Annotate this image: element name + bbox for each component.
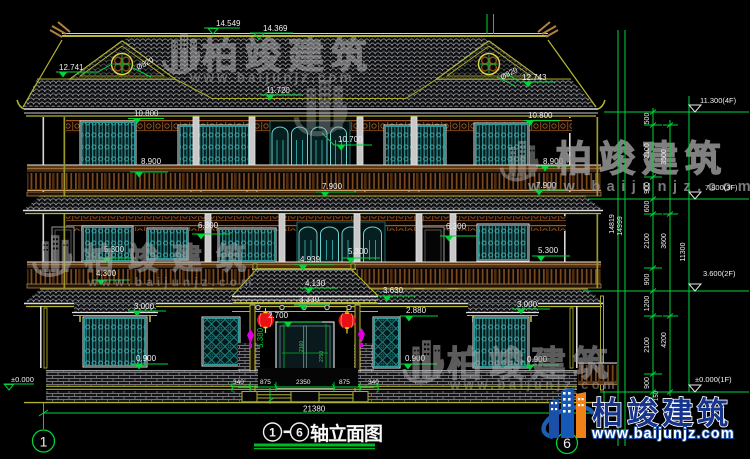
svg-text:14.549: 14.549 (216, 19, 241, 28)
svg-text:5.380: 5.380 (256, 327, 265, 348)
svg-text:1200: 1200 (644, 296, 651, 312)
svg-text:8.900: 8.900 (141, 157, 162, 166)
svg-text:5.300: 5.300 (348, 247, 369, 256)
svg-text:10.700: 10.700 (338, 135, 363, 144)
svg-text:7.800(3F): 7.800(3F) (705, 183, 738, 192)
svg-text:14819: 14819 (609, 214, 616, 234)
svg-text:2100: 2100 (644, 143, 651, 159)
svg-text:340: 340 (368, 379, 379, 386)
svg-text:1: 1 (269, 426, 276, 440)
svg-text:3.630: 3.630 (383, 286, 404, 295)
svg-text:14999: 14999 (617, 216, 624, 236)
svg-text:1: 1 (40, 434, 48, 450)
svg-text:900: 900 (644, 274, 651, 286)
svg-text:6.300: 6.300 (446, 222, 467, 231)
svg-text:875: 875 (260, 379, 271, 386)
svg-text:6.300: 6.300 (198, 221, 219, 230)
svg-text:4.130: 4.130 (305, 279, 326, 288)
svg-text:2.880: 2.880 (406, 306, 427, 315)
svg-text:3.000: 3.000 (134, 302, 155, 311)
svg-text:±0.000: ±0.000 (11, 375, 34, 384)
svg-text:500: 500 (644, 113, 651, 125)
svg-text:3600: 3600 (661, 233, 668, 249)
svg-text:柏竣建筑: 柏竣建筑 (84, 242, 260, 276)
svg-text:4200: 4200 (661, 332, 668, 348)
svg-text:11.720: 11.720 (266, 86, 290, 95)
svg-text:12.743: 12.743 (522, 73, 547, 82)
svg-text:2100: 2100 (644, 337, 651, 353)
svg-text:900: 900 (644, 377, 651, 389)
svg-text:11300: 11300 (680, 242, 687, 261)
svg-text:10.800: 10.800 (134, 109, 159, 118)
svg-text:11.300(4F): 11.300(4F) (700, 96, 737, 105)
svg-text:12.741: 12.741 (59, 63, 84, 72)
svg-text:5.300: 5.300 (538, 246, 559, 255)
svg-text:www.baijunjz.com: www.baijunjz.com (449, 377, 618, 392)
svg-text:www.baijunjz.com: www.baijunjz.com (87, 275, 256, 289)
svg-text:7.900: 7.900 (322, 182, 343, 191)
svg-text:4.939: 4.939 (300, 255, 321, 264)
svg-text:2.700: 2.700 (268, 311, 289, 320)
svg-text:柏竣建筑: 柏竣建筑 (556, 138, 728, 179)
svg-text:3.000: 3.000 (517, 300, 538, 309)
svg-text:10.800: 10.800 (528, 111, 553, 120)
svg-text:21380: 21380 (303, 405, 326, 414)
svg-text:2160: 2160 (299, 341, 305, 352)
svg-text:340: 340 (233, 379, 244, 386)
svg-text:3500: 3500 (661, 149, 668, 165)
svg-text:www.baijunjz.com: www.baijunjz.com (591, 426, 735, 442)
svg-text:±0.000(1F): ±0.000(1F) (695, 375, 732, 384)
svg-text:3.600(2F): 3.600(2F) (703, 269, 736, 278)
svg-text:2750: 2750 (319, 351, 325, 362)
svg-text:2350: 2350 (296, 379, 311, 386)
svg-text:轴立面图: 轴立面图 (310, 422, 382, 445)
svg-text:14.369: 14.369 (263, 24, 288, 33)
svg-text:0.900: 0.900 (136, 354, 157, 363)
svg-text:875: 875 (339, 379, 350, 386)
svg-text:2100: 2100 (644, 233, 651, 249)
svg-text:900: 900 (644, 182, 651, 194)
svg-text:600: 600 (644, 201, 651, 213)
svg-text:6: 6 (296, 426, 303, 440)
svg-text:3.330: 3.330 (299, 295, 320, 304)
